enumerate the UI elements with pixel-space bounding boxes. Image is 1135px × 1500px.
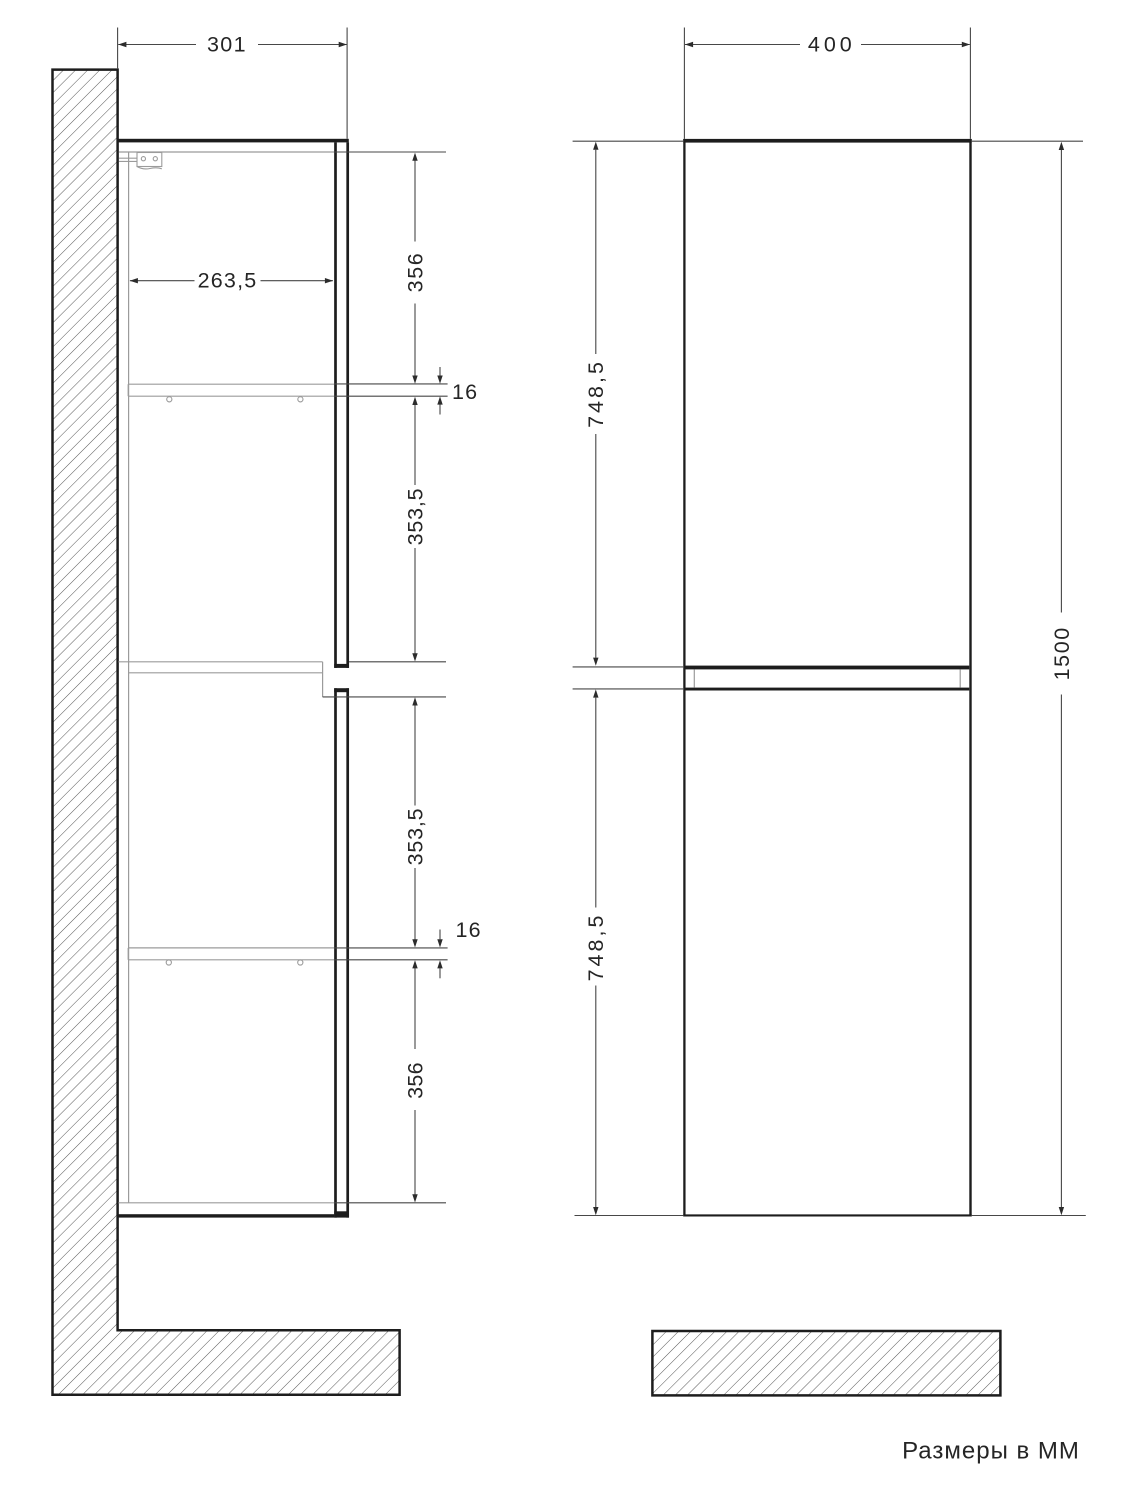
svg-text:353,5: 353,5 (403, 808, 427, 866)
svg-text:748,5: 748,5 (584, 359, 608, 428)
svg-text:263,5: 263,5 (198, 269, 258, 293)
svg-text:353,5: 353,5 (403, 488, 427, 546)
svg-text:301: 301 (207, 32, 247, 56)
svg-text:1500: 1500 (1050, 626, 1074, 680)
svg-text:Размеры в ММ: Размеры в ММ (902, 1437, 1080, 1464)
svg-text:748,5: 748,5 (584, 913, 608, 982)
svg-text:16: 16 (456, 918, 482, 942)
svg-text:400: 400 (808, 32, 856, 56)
svg-text:356: 356 (403, 252, 427, 293)
svg-text:356: 356 (403, 1062, 427, 1099)
svg-text:16: 16 (452, 380, 478, 404)
